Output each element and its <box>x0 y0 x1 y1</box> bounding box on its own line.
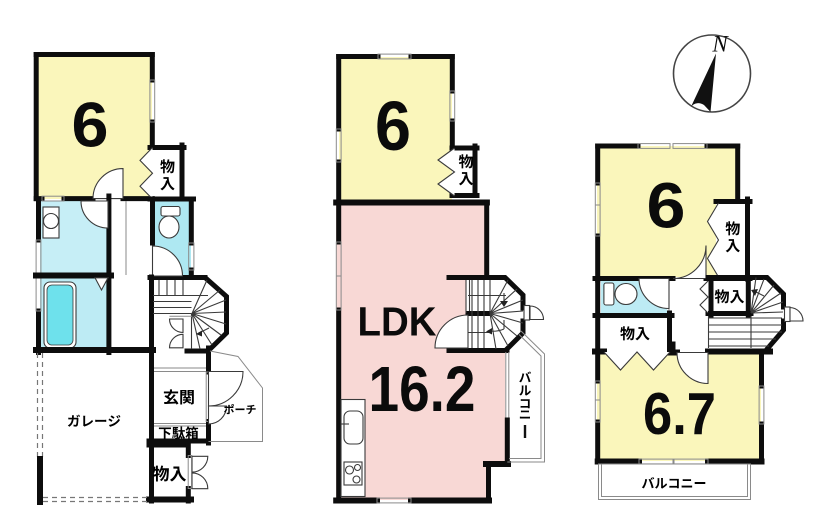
svg-text:16.2: 16.2 <box>369 353 476 425</box>
svg-text:6.7: 6.7 <box>643 381 716 447</box>
svg-text:LDK: LDK <box>358 299 437 345</box>
svg-text:N: N <box>711 32 729 57</box>
svg-text:6: 6 <box>647 170 686 242</box>
svg-text:6: 6 <box>72 91 109 161</box>
svg-text:6: 6 <box>375 87 411 165</box>
